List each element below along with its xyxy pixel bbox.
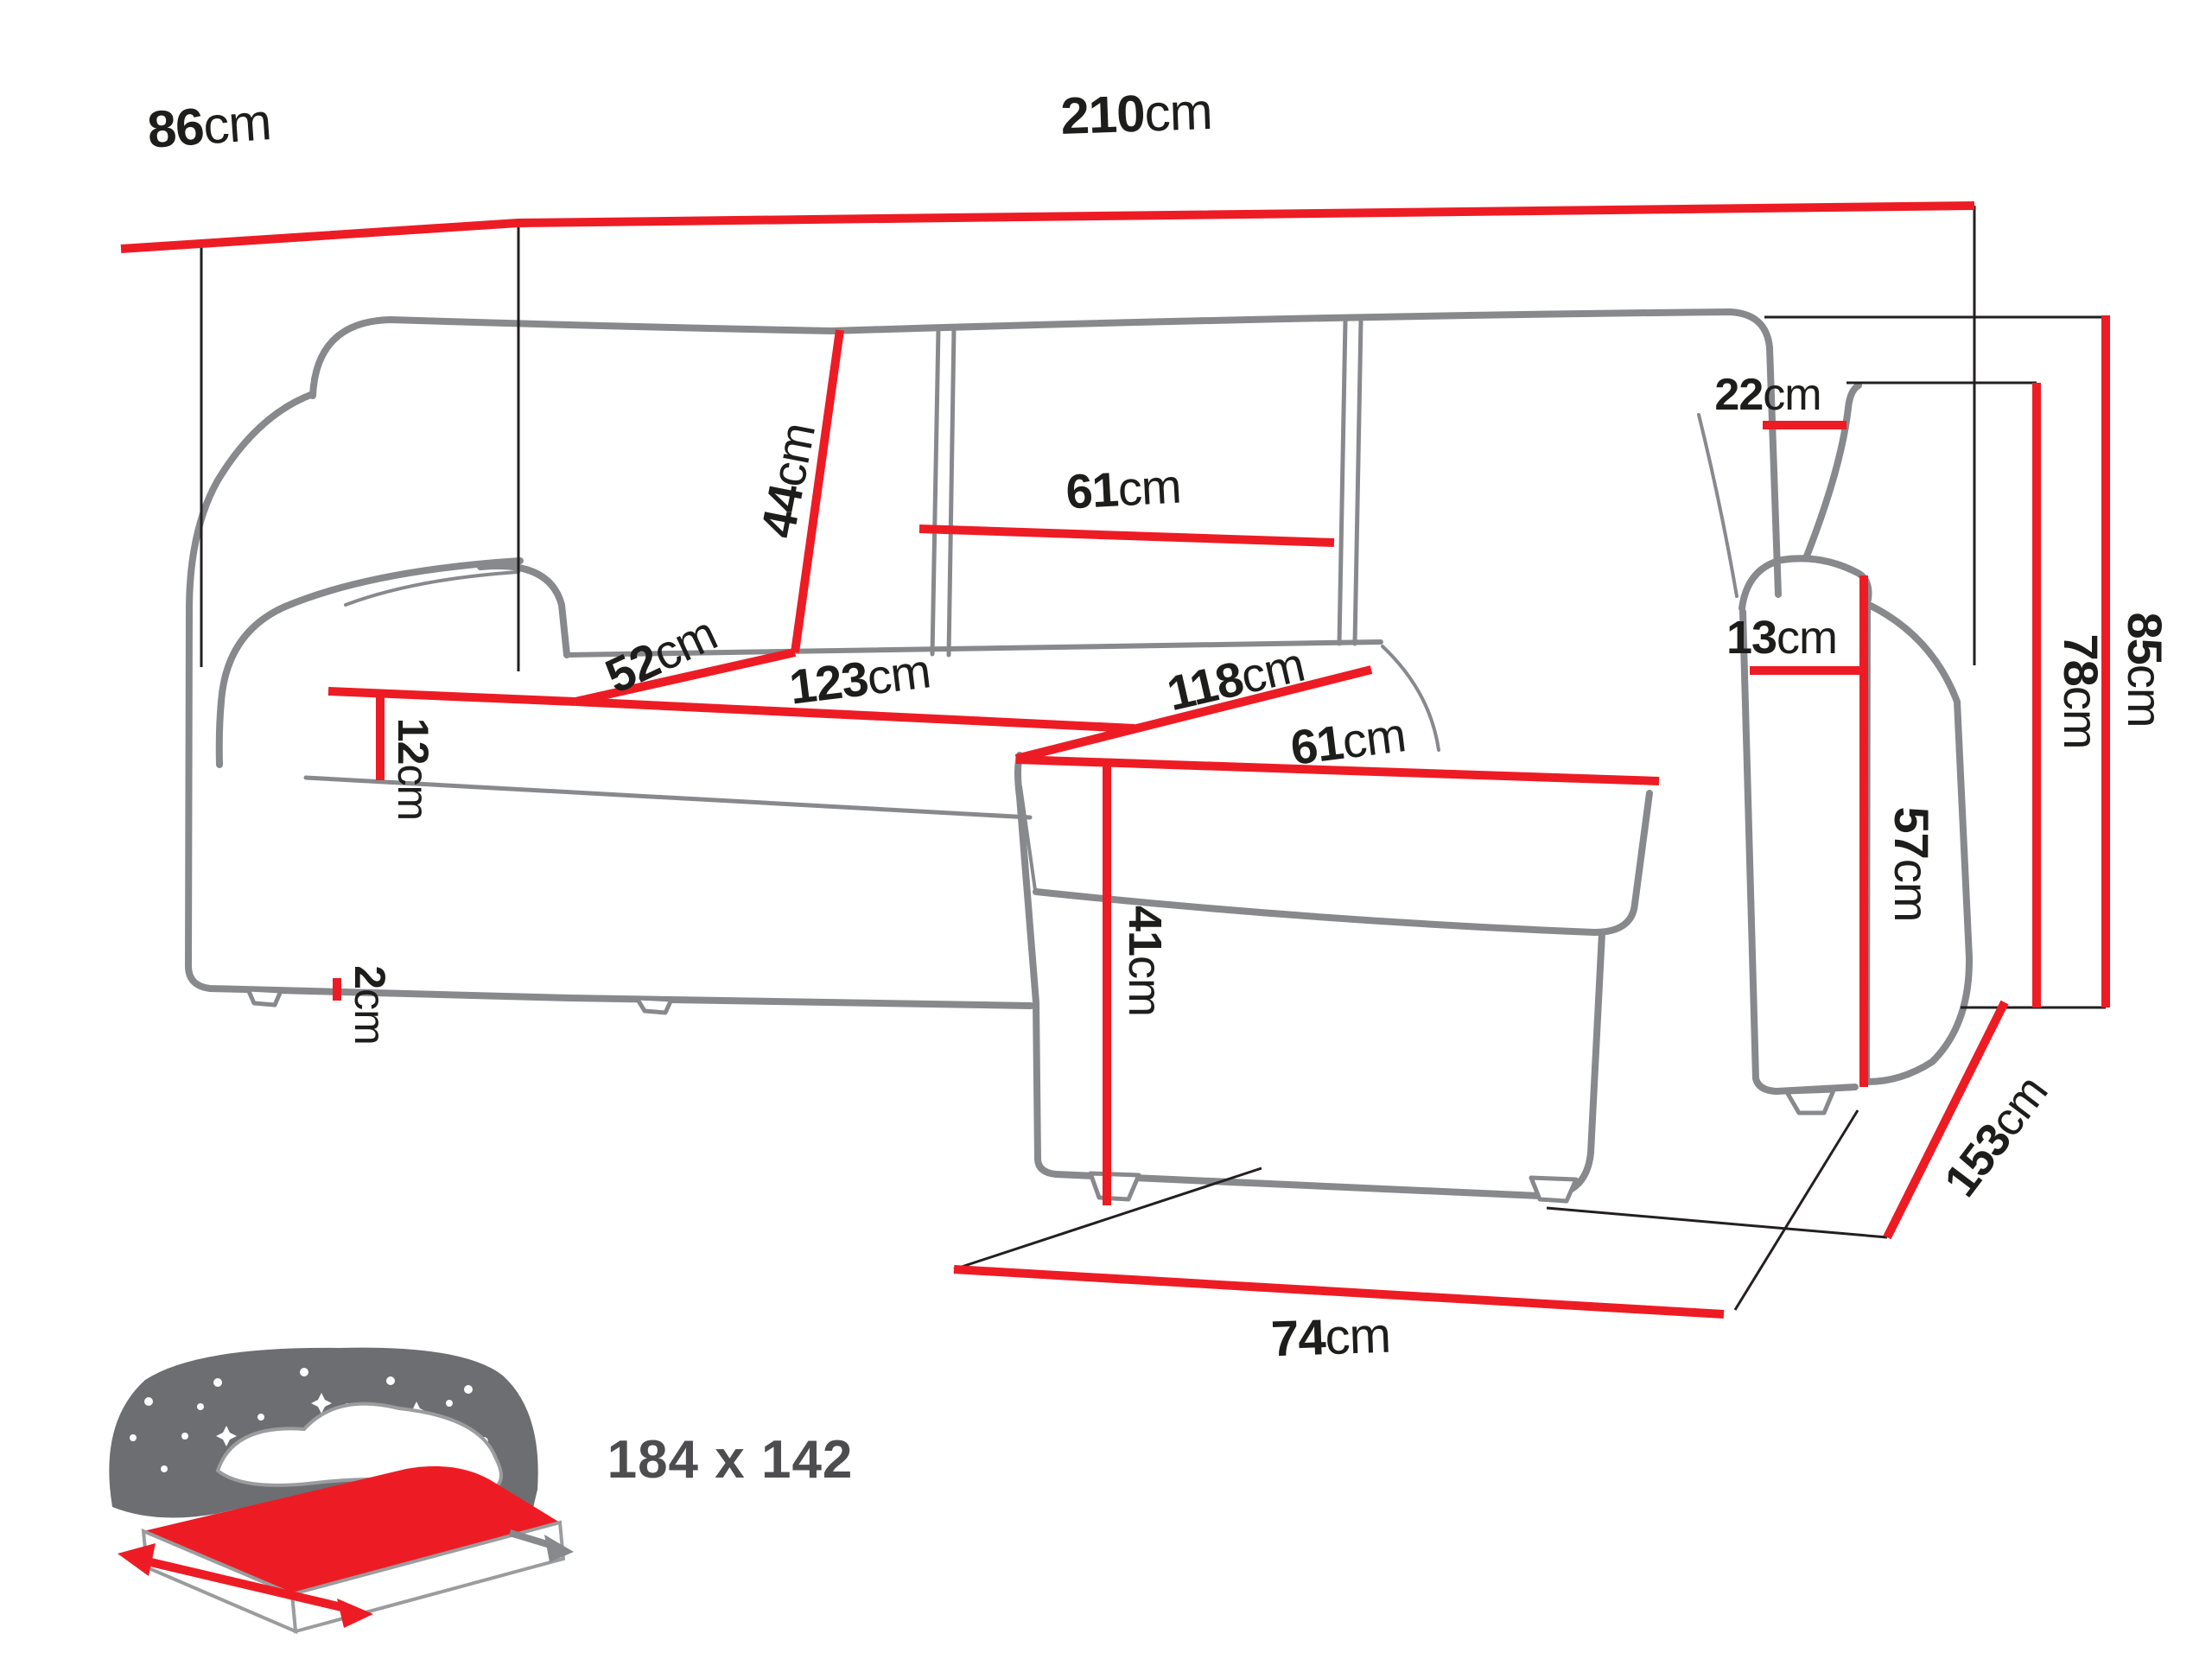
backrest-top-edge [313,312,1778,594]
dim-line-seat-front [328,691,575,702]
sofa-foot [1787,1090,1834,1113]
dim-label-85cm: 85cm [2120,613,2169,728]
dim-label-41cm: 41cm [1122,906,1168,1016]
dim-line-61-back [919,529,1334,543]
sofa-drawing [188,312,1969,1201]
dim-label-12cm: 12cm [391,718,435,820]
sofa-foot [637,998,671,1013]
back-cushion-gap-2 [1339,321,1345,644]
bed-icon [109,1348,574,1631]
back-cushion-gap-1b [949,329,954,655]
right-arm-front-left-edge [1743,612,1855,1091]
dim-label-78cm: 78cm [2056,634,2105,749]
left-arm-top-roll [219,561,520,765]
sofa-foot [1531,1178,1576,1201]
dim-label-13cm: 13cm [1726,614,1837,661]
right-arm-top-edge [1742,558,1869,608]
dim-label-2cm: 2cm [348,965,391,1044]
sofa-foot [248,989,281,1005]
dim-label-22cm: 22cm [1714,372,1821,417]
chaise-right-edge [1591,933,1602,1153]
dim-label-57cm: 57cm [1887,807,1935,922]
sofa-dimension-diagram: 86cm 210cm 22cm 44cm 61cm 52cm 123cm 118… [0,0,2212,1659]
diagram-canvas [0,0,2212,1659]
left-arm-front-edge [480,566,567,655]
bed-size-label: 184 x 142 [607,1433,854,1487]
floor-line-rear [1547,1208,1887,1237]
dim-label-74cm: 74cm [1270,1311,1391,1365]
back-cushion-gap-1 [932,329,938,654]
backrest-right-sliver [1699,415,1737,596]
dim-label-86cm: 86cm [146,96,273,156]
dim-label-210cm: 210cm [1059,86,1212,143]
dim-label-61cm-chaise: 61cm [1288,710,1408,772]
dim-label-61cm-back: 61cm [1065,462,1182,517]
sofa-foot [1090,1173,1139,1199]
floor-line-right [1735,1110,1858,1310]
dim-line-86-210 [121,206,1974,249]
dim-line-74 [954,1269,1724,1314]
back-cushion-gap-2b [1355,321,1361,644]
